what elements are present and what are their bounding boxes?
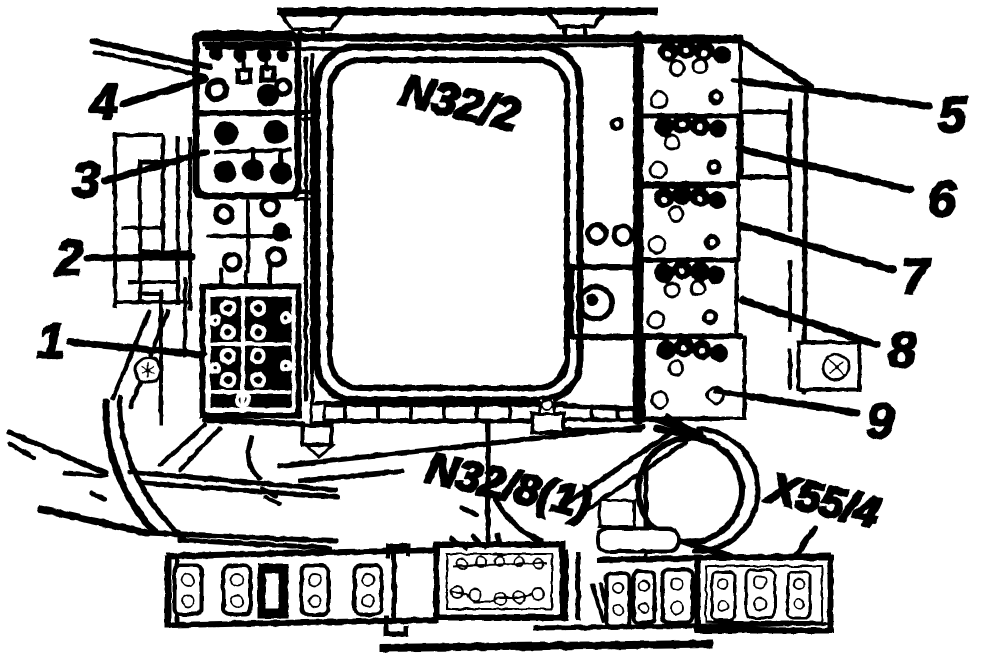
svg-text:4: 4 (89, 74, 118, 130)
svg-text:5: 5 (938, 87, 967, 143)
svg-text:3: 3 (72, 152, 100, 208)
svg-text:6: 6 (928, 171, 957, 227)
svg-text:2: 2 (54, 230, 83, 286)
svg-text:7: 7 (901, 249, 931, 305)
svg-text:9: 9 (866, 393, 894, 449)
svg-text:1: 1 (37, 313, 65, 369)
svg-text:8: 8 (888, 322, 916, 378)
